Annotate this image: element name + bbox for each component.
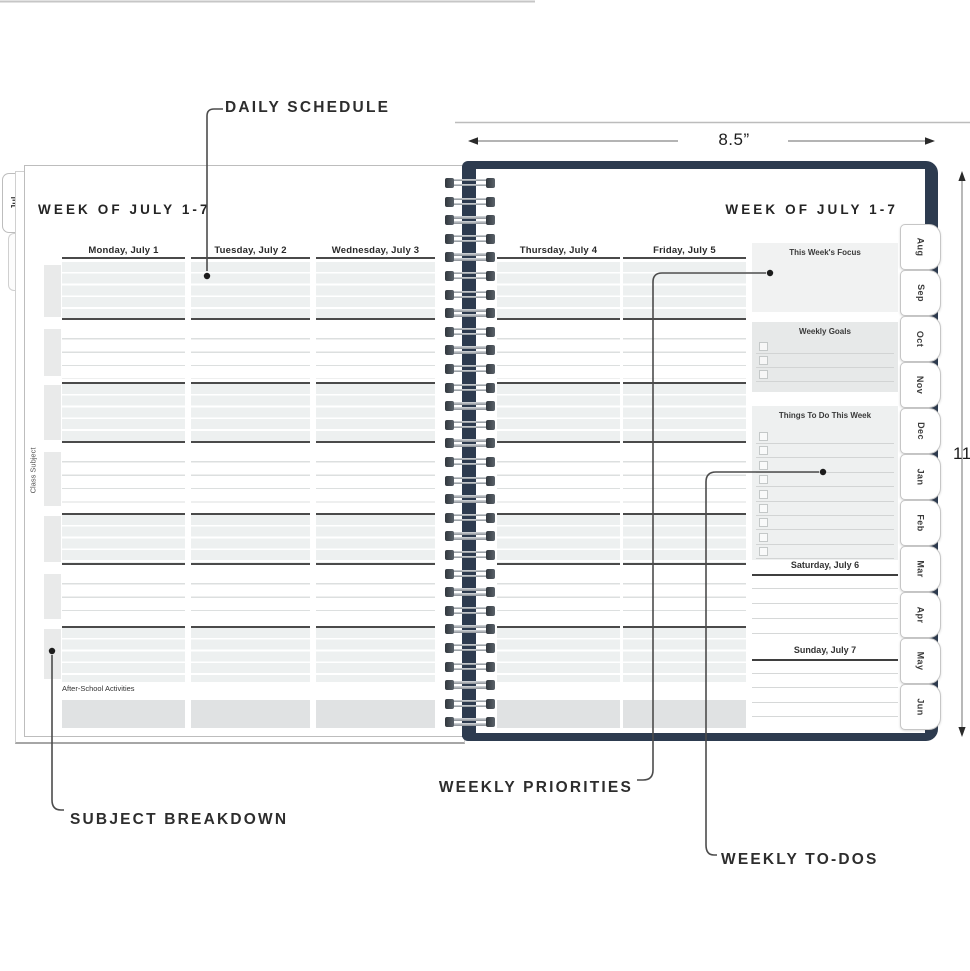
spiral-cap [486,662,495,672]
spiral-cap [486,178,495,188]
month-tab-sep: Sep [900,270,941,316]
right-day-1-section-7 [497,626,620,682]
spiral-cap [486,699,495,709]
spiral-cap [486,345,495,355]
things-to-do-row-4 [756,473,894,487]
spiral-cap [486,494,495,504]
spiral-loop [445,531,495,542]
right-day-1-section-6 [497,571,620,622]
class-subject-label-text: Class Subject [28,447,37,493]
right-day-2-section-7 [623,626,746,682]
left-day-2-section-6 [191,571,310,622]
spiral-cap [486,606,495,616]
spiral-cap [445,215,454,225]
class-subject-block-6 [44,574,61,619]
subject-breakdown-label: SUBJECT BREAKDOWN [70,811,288,829]
weekly-priorities-label: WEEKLY PRIORITIES [430,779,633,797]
left-day-2-section-2 [191,326,310,379]
spiral-cap [445,587,454,597]
spiral-loop [445,234,495,245]
class-subject-block-7 [44,629,61,679]
left-day-2-header: Tuesday, July 2 [191,243,310,259]
spiral-loop [445,271,495,282]
left-day-1-section-5 [62,513,185,565]
left-day-1-after-school-block [62,700,185,728]
left-day-2-section-1 [191,262,310,320]
left-day-1-header: Monday, July 1 [62,243,185,259]
class-subject-block-1 [44,265,61,317]
things-to-do-box [752,406,898,560]
spiral-loop [445,364,495,375]
month-tab-jan-label: Jan [916,469,926,486]
left-day-1-section-6 [62,571,185,622]
spiral-cap [445,401,454,411]
saturday-rule [752,574,898,576]
spiral-cap [486,308,495,318]
daily-schedule-label: DAILY SCHEDULE [225,99,390,117]
left-day-1-section-1 [62,262,185,320]
month-tab-may-label: May [916,652,926,671]
left-day-2-section-4 [191,449,310,509]
spiral-cap [486,420,495,430]
spiral-cap [445,308,454,318]
things-to-do-checkbox-4 [759,475,768,484]
weekly-goals-row-3 [756,368,894,382]
month-tab-jan: Jan [900,454,941,500]
after-school-activities-label: After-School Activities [62,684,135,693]
month-tab-aug-label: Aug [915,238,925,257]
saturday-line-3 [752,618,898,619]
spiral-cap [445,364,454,374]
right-day-2-section-5 [623,513,746,565]
things-to-do-checkbox-3 [759,461,768,470]
right-day-2-section-4 [623,449,746,509]
spiral-cap [486,234,495,244]
month-tab-nov-label: Nov [915,376,925,394]
spiral-loop [445,178,495,189]
spiral-cap [486,383,495,393]
right-day-1-section-1 [497,262,620,320]
right-day-2-section-3 [623,382,746,443]
left-day-3-section-3 [316,382,435,443]
class-subject-block-2 [44,329,61,376]
spiral-loop [445,383,495,394]
things-to-do-row-9 [756,545,894,559]
spiral-cap [486,401,495,411]
spiral-loop [445,476,495,487]
spiral-cap [445,420,454,430]
spiral-cap [486,550,495,560]
left-day-3-section-4 [316,449,435,509]
spiral-loop [445,252,495,263]
spiral-cap [445,345,454,355]
spiral-loop [445,587,495,598]
class-subject-block-5 [44,516,61,562]
spiral-loop [445,513,495,524]
things-to-do-checkbox-7 [759,518,768,527]
spiral-loop [445,680,495,691]
left-day-1-section-3 [62,382,185,443]
spiral-loop [445,308,495,319]
month-tab-dec-label: Dec [916,422,926,440]
right-day-1-section-2 [497,326,620,379]
right-day-1-after-school-block [497,700,620,728]
right-day-2-section-6 [623,571,746,622]
month-tab-feb: Feb [900,500,941,546]
weekly-goals-row-2 [756,354,894,368]
weekly-goals-checkbox-2 [759,356,768,365]
things-to-do-checkbox-8 [759,533,768,542]
spiral-loop [445,438,495,449]
things-to-do-checkbox-1 [759,432,768,441]
spiral-loop [445,717,495,728]
left-day-2-after-school-block [191,700,310,728]
spiral-loop [445,457,495,468]
spiral-cap [445,494,454,504]
month-tab-oct: Oct [900,316,941,362]
spiral-cap [486,624,495,634]
spiral-cap [486,457,495,467]
things-to-do-checkbox-5 [759,490,768,499]
spiral-cap [486,271,495,281]
spiral-cap [486,290,495,300]
spiral-loop [445,215,495,226]
spiral-cap [445,327,454,337]
month-tab-sep-label: Sep [916,284,926,302]
things-to-do-row-2 [756,444,894,458]
right-day-1-section-4 [497,449,620,509]
spiral-cap [486,680,495,690]
spiral-cap [445,383,454,393]
spiral-cap [486,327,495,337]
saturday-line-2 [752,603,898,604]
spiral-cap [486,438,495,448]
right-day-2-after-school-block [623,700,746,728]
left-day-1-section-2 [62,326,185,379]
things-to-do-checkbox-2 [759,446,768,455]
spiral-cap [486,569,495,579]
left-day-3-section-5 [316,513,435,565]
spiral-loop [445,345,495,356]
spiral-loop [445,494,495,505]
month-tab-dec: Dec [900,408,941,454]
spiral-cap [445,197,454,207]
spiral-loop [445,197,495,208]
left-day-1-section-7 [62,626,185,682]
month-tab-apr: Apr [900,592,941,638]
spiral-cap [486,215,495,225]
left-day-3-after-school-block [316,700,435,728]
month-tab-nov: Nov [900,362,941,408]
spiral-cap [486,197,495,207]
weekly-goals-checkbox-3 [759,370,768,379]
class-subject-block-3 [44,385,61,440]
left-day-2-section-5 [191,513,310,565]
spiral-cap [486,364,495,374]
left-day-3-section-1 [316,262,435,320]
left-day-1-section-4 [62,449,185,509]
month-tab-oct-label: Oct [915,331,925,347]
spiral-cap [445,513,454,523]
left-day-3-section-6 [316,571,435,622]
spiral-cap [445,624,454,634]
sunday-line-3 [752,702,898,703]
sunday-line-4 [752,716,898,717]
spiral-cap [445,271,454,281]
spiral-loop [445,569,495,580]
weekly-goals-checkbox-1 [759,342,768,351]
things-to-do-checkbox-6 [759,504,768,513]
left-day-3-section-2 [316,326,435,379]
left-day-3-section-7 [316,626,435,682]
right-day-1-header: Thursday, July 4 [497,243,620,259]
weekly-goals-title: Weekly Goals [752,327,898,336]
weekly-goals-row-1 [756,340,894,354]
things-to-do-row-8 [756,531,894,545]
month-tab-aug: Aug [900,224,941,270]
sunday-rule [752,659,898,661]
things-to-do-row-1 [756,430,894,444]
spiral-cap [486,717,495,727]
right-page-title: WEEK OF JULY 1-7 [600,202,898,217]
things-to-do-row-5 [756,488,894,502]
left-day-3-header: Wednesday, July 3 [316,243,435,259]
saturday-title: Saturday, July 6 [752,560,898,570]
month-tab-mar: Mar [900,546,941,592]
spiral-loop [445,290,495,301]
class-subject-label: Class Subject [1,438,65,502]
things-to-do-checkbox-9 [759,547,768,556]
spiral-cap [445,178,454,188]
width-dimension-label: 8.5” [682,130,786,150]
spiral-cap [445,680,454,690]
spiral-cap [486,252,495,262]
spiral-cap [486,643,495,653]
spiral-cap [445,438,454,448]
month-tab-jun: Jun [900,684,941,730]
left-day-2-section-7 [191,626,310,682]
spiral-cap [445,662,454,672]
spiral-loop [445,327,495,338]
left-day-2-section-3 [191,382,310,443]
saturday-line-1 [752,588,898,589]
spiral-loop [445,643,495,654]
month-tab-may: May [900,638,941,684]
spiral-cap [445,290,454,300]
month-tab-apr-label: Apr [915,607,925,624]
sunday-title: Sunday, July 7 [752,645,898,655]
things-to-do-row-6 [756,502,894,516]
right-day-1-section-5 [497,513,620,565]
spiral-cap [445,531,454,541]
spiral-cap [486,587,495,597]
right-day-2-section-2 [623,326,746,379]
spiral-cap [445,476,454,486]
spiral-loop [445,401,495,412]
saturday-line-4 [752,633,898,634]
sunday-line-1 [752,673,898,674]
height-dimension-label: 11” [953,444,970,464]
right-day-1-section-3 [497,382,620,443]
planner-product-image: DAILY SCHEDULE WEEKLY PRIORITIES SUBJECT… [0,0,970,971]
spiral-cap [445,457,454,467]
spiral-cap [445,699,454,709]
spiral-cap [445,643,454,653]
spiral-cap [445,606,454,616]
month-tab-jun-label: Jun [915,698,925,715]
spiral-cap [445,234,454,244]
spiral-cap [445,569,454,579]
right-day-2-header: Friday, July 5 [623,243,746,259]
right-day-2-section-1 [623,262,746,320]
spiral-loop [445,624,495,635]
month-tab-mar-label: Mar [916,560,926,577]
spiral-cap [486,513,495,523]
month-tab-feb-label: Feb [915,514,925,531]
weekly-todos-label: WEEKLY TO-DOS [721,851,879,869]
spiral-loop [445,699,495,710]
spiral-loop [445,606,495,617]
this-weeks-focus-title: This Week's Focus [752,248,898,257]
spiral-cap [486,476,495,486]
spiral-loop [445,662,495,673]
things-to-do-row-7 [756,516,894,530]
spiral-cap [486,531,495,541]
spiral-cap [445,252,454,262]
spiral-loop [445,550,495,561]
left-page-title: WEEK OF JULY 1-7 [38,202,211,217]
spiral-cap [445,550,454,560]
spiral-loop [445,420,495,431]
things-to-do-row-3 [756,459,894,473]
things-to-do-title: Things To Do This Week [752,411,898,420]
sunday-line-2 [752,687,898,688]
spiral-cap [445,717,454,727]
